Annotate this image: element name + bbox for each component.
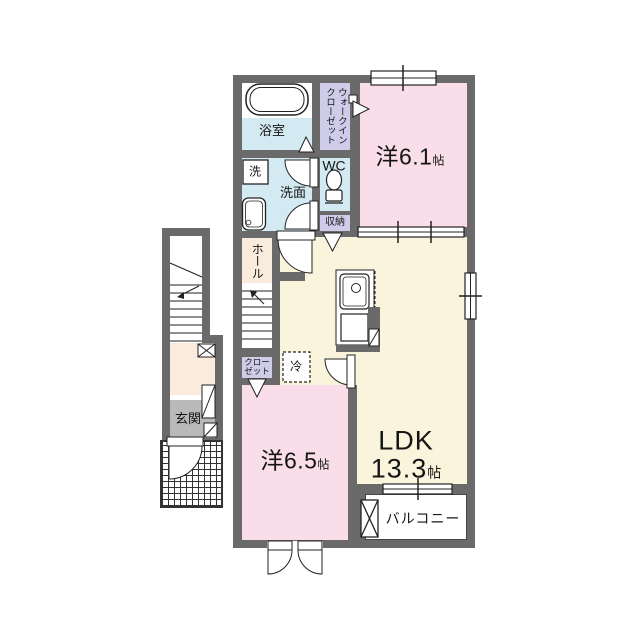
symbols-overlay: [0, 0, 640, 640]
label-closet: クロー ゼット: [244, 358, 270, 376]
entrance-front-door-icon: [202, 385, 215, 418]
western2-south-doors: [267, 541, 323, 574]
window-ldk-east: [459, 273, 482, 319]
bathtub-icon: [246, 84, 308, 115]
window-top-western1: [371, 65, 436, 91]
western2-door: [325, 355, 355, 388]
label-western-room-1: 洋6.1帖: [376, 145, 445, 170]
label-refrigerator: 冷: [290, 361, 302, 374]
washroom-door-lower: [285, 201, 318, 230]
window-western1-ldk: [358, 221, 464, 243]
label-storage: 収納: [325, 218, 345, 229]
toilet-icon: [325, 170, 343, 203]
vanity-sink-icon: [243, 198, 266, 230]
hall-door: [272, 231, 315, 281]
landing-crossbox-icon: [198, 344, 215, 357]
genkan-diagbox-icon: [204, 423, 217, 437]
label-entrance: 玄関: [175, 412, 201, 426]
label-hall: ホール: [251, 243, 264, 279]
washroom-door-upper: [285, 158, 318, 187]
label-balcony: バルコニー: [386, 512, 461, 527]
label-ldk: LDK 13.3帖: [371, 427, 442, 484]
label-walk-in-closet: ウォークイン クローゼット: [323, 88, 347, 145]
label-western-room-2: 洋6.5帖: [261, 449, 330, 474]
kitchen-counter-icon: [336, 270, 380, 352]
bathroom-door-icon: [299, 137, 314, 152]
wic-door-icon: [349, 95, 369, 117]
label-laundry: 洗: [249, 166, 261, 179]
floor-plan: 浴室 ウォークイン クローゼット 洋6.1帖 洗 洗面 WC 収納 ホール クロ…: [0, 0, 640, 640]
label-wc: WC: [322, 159, 345, 174]
storage-door-icon: [323, 233, 342, 251]
label-bathroom: 浴室: [259, 124, 285, 138]
label-washroom: 洗面: [280, 186, 306, 200]
outdoor-stairs-treads: [170, 263, 202, 341]
balcony-crossbox-icon: [361, 500, 378, 537]
genkan-porch-door: [167, 437, 203, 479]
indoor-stairs-treads: [242, 290, 272, 339]
closet-door-icon: [248, 379, 266, 397]
